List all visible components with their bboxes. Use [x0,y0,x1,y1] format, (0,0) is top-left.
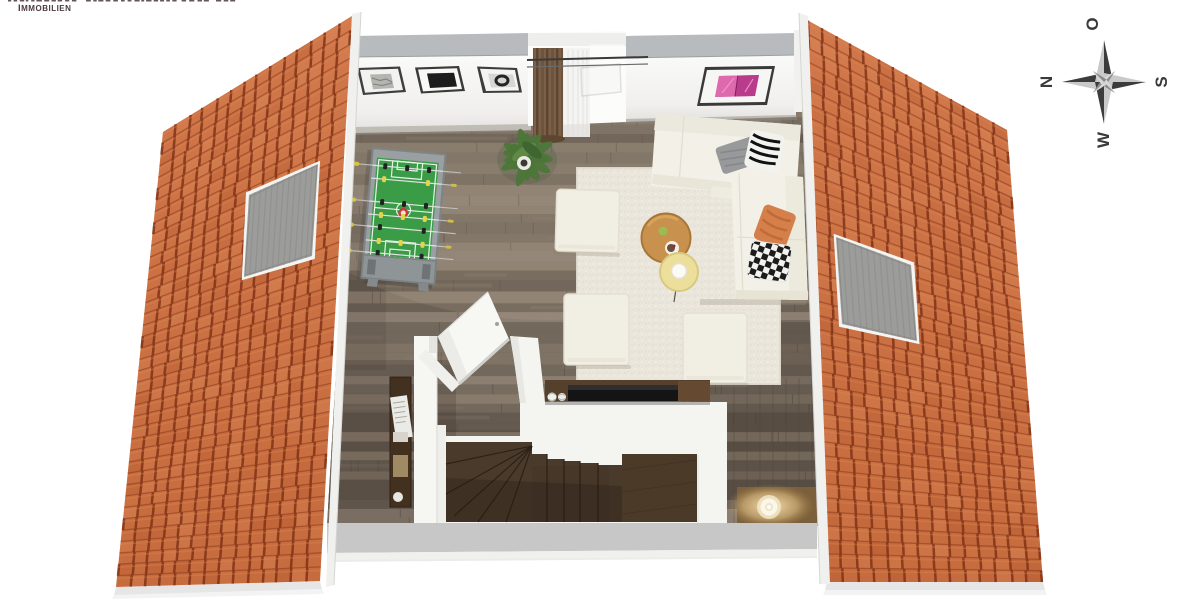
svg-text:IMMOBILIEN: IMMOBILIEN [18,3,71,14]
svg-text:S: S [1152,76,1171,87]
svg-text:O: O [1083,17,1102,30]
svg-text:N: N [1037,76,1056,88]
svg-text:W: W [1094,131,1113,148]
